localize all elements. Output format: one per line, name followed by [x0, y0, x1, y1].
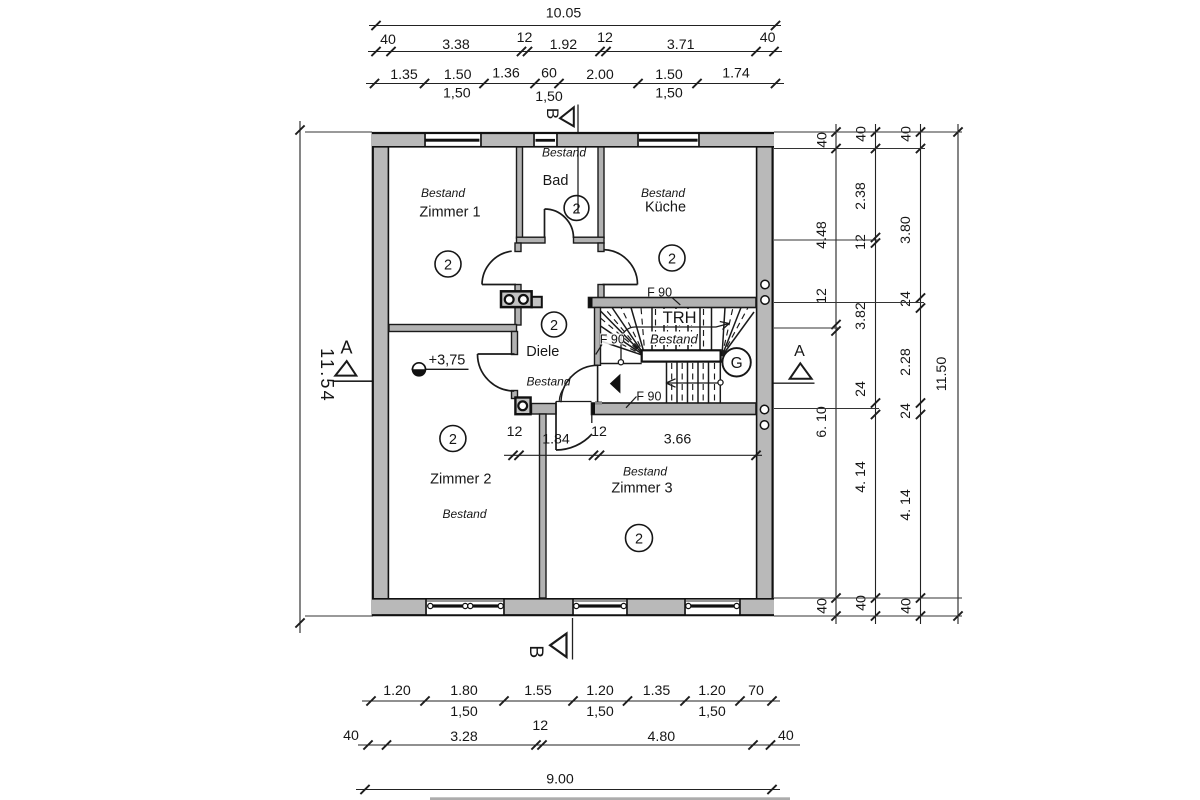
svg-text:1.20: 1.20: [586, 683, 614, 699]
svg-text:+3,75: +3,75: [429, 353, 466, 369]
svg-text:Zimmer 3: Zimmer 3: [611, 481, 672, 497]
svg-text:40: 40: [815, 598, 831, 614]
svg-text:2: 2: [635, 532, 643, 548]
svg-text:Bestand: Bestand: [623, 465, 667, 479]
svg-text:2: 2: [572, 202, 580, 218]
svg-text:3.38: 3.38: [442, 37, 470, 53]
svg-text:12: 12: [814, 288, 830, 304]
svg-text:F 90: F 90: [636, 389, 661, 403]
svg-text:12: 12: [597, 30, 613, 46]
svg-text:F 90: F 90: [647, 286, 672, 300]
svg-text:1.50: 1.50: [444, 67, 472, 83]
svg-text:3.66: 3.66: [664, 432, 692, 448]
svg-text:Bestand: Bestand: [421, 186, 465, 200]
svg-text:1.20: 1.20: [698, 683, 726, 699]
svg-text:3.28: 3.28: [450, 729, 478, 745]
svg-text:3.80: 3.80: [898, 216, 914, 244]
svg-text:1,50: 1,50: [698, 704, 726, 720]
svg-text:40: 40: [854, 126, 870, 142]
svg-text:Bestand: Bestand: [526, 375, 570, 389]
svg-text:Bestand: Bestand: [641, 186, 685, 200]
svg-text:2.00: 2.00: [586, 67, 614, 83]
svg-text:40: 40: [899, 126, 915, 142]
svg-text:12: 12: [591, 424, 607, 440]
svg-text:2: 2: [668, 252, 676, 268]
svg-text:2.38: 2.38: [853, 182, 869, 210]
svg-text:40: 40: [778, 728, 794, 744]
svg-text:12: 12: [517, 30, 533, 46]
svg-text:TRH: TRH: [663, 309, 697, 327]
svg-text:F 90: F 90: [600, 332, 625, 346]
svg-text:40: 40: [343, 728, 359, 744]
svg-text:1.84: 1.84: [542, 432, 570, 448]
svg-text:40: 40: [899, 598, 915, 614]
svg-text:1.74: 1.74: [722, 66, 750, 82]
svg-text:Diele: Diele: [526, 344, 559, 360]
svg-text:Zimmer 1: Zimmer 1: [419, 205, 480, 221]
svg-text:1.35: 1.35: [643, 683, 671, 699]
svg-text:70: 70: [748, 683, 764, 699]
svg-text:24: 24: [898, 403, 914, 419]
svg-text:Küche: Küche: [645, 200, 686, 216]
svg-text:Bestand: Bestand: [650, 332, 698, 347]
svg-text:1.50: 1.50: [655, 67, 683, 83]
svg-text:Bestand: Bestand: [542, 146, 586, 160]
svg-text:40: 40: [815, 132, 831, 148]
svg-text:1.35: 1.35: [390, 67, 418, 83]
svg-text:11.50: 11.50: [934, 357, 950, 392]
svg-text:Bad: Bad: [543, 173, 569, 189]
svg-text:3.71: 3.71: [667, 37, 695, 53]
svg-text:A: A: [340, 338, 352, 358]
svg-text:1,50: 1,50: [443, 86, 471, 102]
svg-text:2: 2: [449, 432, 457, 448]
svg-text:B: B: [543, 108, 562, 119]
svg-text:4. 14: 4. 14: [853, 461, 869, 493]
svg-text:2: 2: [550, 318, 558, 334]
svg-text:G: G: [731, 355, 743, 372]
svg-text:1.55: 1.55: [524, 683, 552, 699]
svg-text:40: 40: [380, 32, 396, 48]
svg-text:12: 12: [853, 234, 869, 250]
svg-text:40: 40: [854, 595, 870, 611]
svg-text:2: 2: [444, 258, 452, 274]
svg-text:1.80: 1.80: [450, 683, 478, 699]
svg-text:10.05: 10.05: [546, 6, 582, 22]
svg-text:1,50: 1,50: [655, 86, 683, 102]
svg-text:4.80: 4.80: [647, 729, 675, 745]
svg-text:12: 12: [507, 424, 523, 440]
svg-text:1,50: 1,50: [586, 704, 614, 720]
svg-text:12: 12: [532, 718, 548, 734]
svg-text:24: 24: [853, 381, 869, 397]
svg-text:1.36: 1.36: [492, 66, 520, 82]
svg-text:9.00: 9.00: [546, 772, 574, 788]
svg-text:24: 24: [898, 291, 914, 307]
svg-text:Zimmer 2: Zimmer 2: [430, 472, 491, 488]
svg-text:1.20: 1.20: [383, 683, 411, 699]
svg-text:A: A: [794, 343, 805, 360]
svg-text:2.28: 2.28: [898, 348, 914, 376]
svg-text:6. 10: 6. 10: [814, 406, 830, 438]
svg-text:B: B: [525, 645, 547, 658]
svg-text:11.54: 11.54: [317, 348, 337, 403]
svg-text:4.48: 4.48: [814, 221, 830, 249]
svg-text:60: 60: [541, 66, 557, 82]
svg-text:3.82: 3.82: [853, 302, 869, 330]
svg-text:1,50: 1,50: [535, 89, 563, 105]
svg-text:Bestand: Bestand: [442, 507, 486, 521]
svg-text:1.92: 1.92: [550, 37, 578, 53]
svg-text:1,50: 1,50: [450, 704, 478, 720]
svg-text:40: 40: [760, 30, 776, 46]
svg-text:4. 14: 4. 14: [898, 489, 914, 521]
